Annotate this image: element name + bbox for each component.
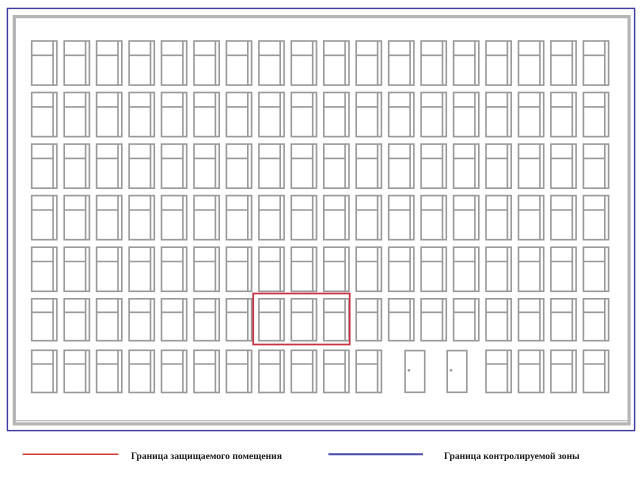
svg-text:Граница защищаемого помещения: Граница защищаемого помещения: [131, 451, 282, 462]
svg-text:Граница контролируемой зоны: Граница контролируемой зоны: [444, 451, 580, 462]
